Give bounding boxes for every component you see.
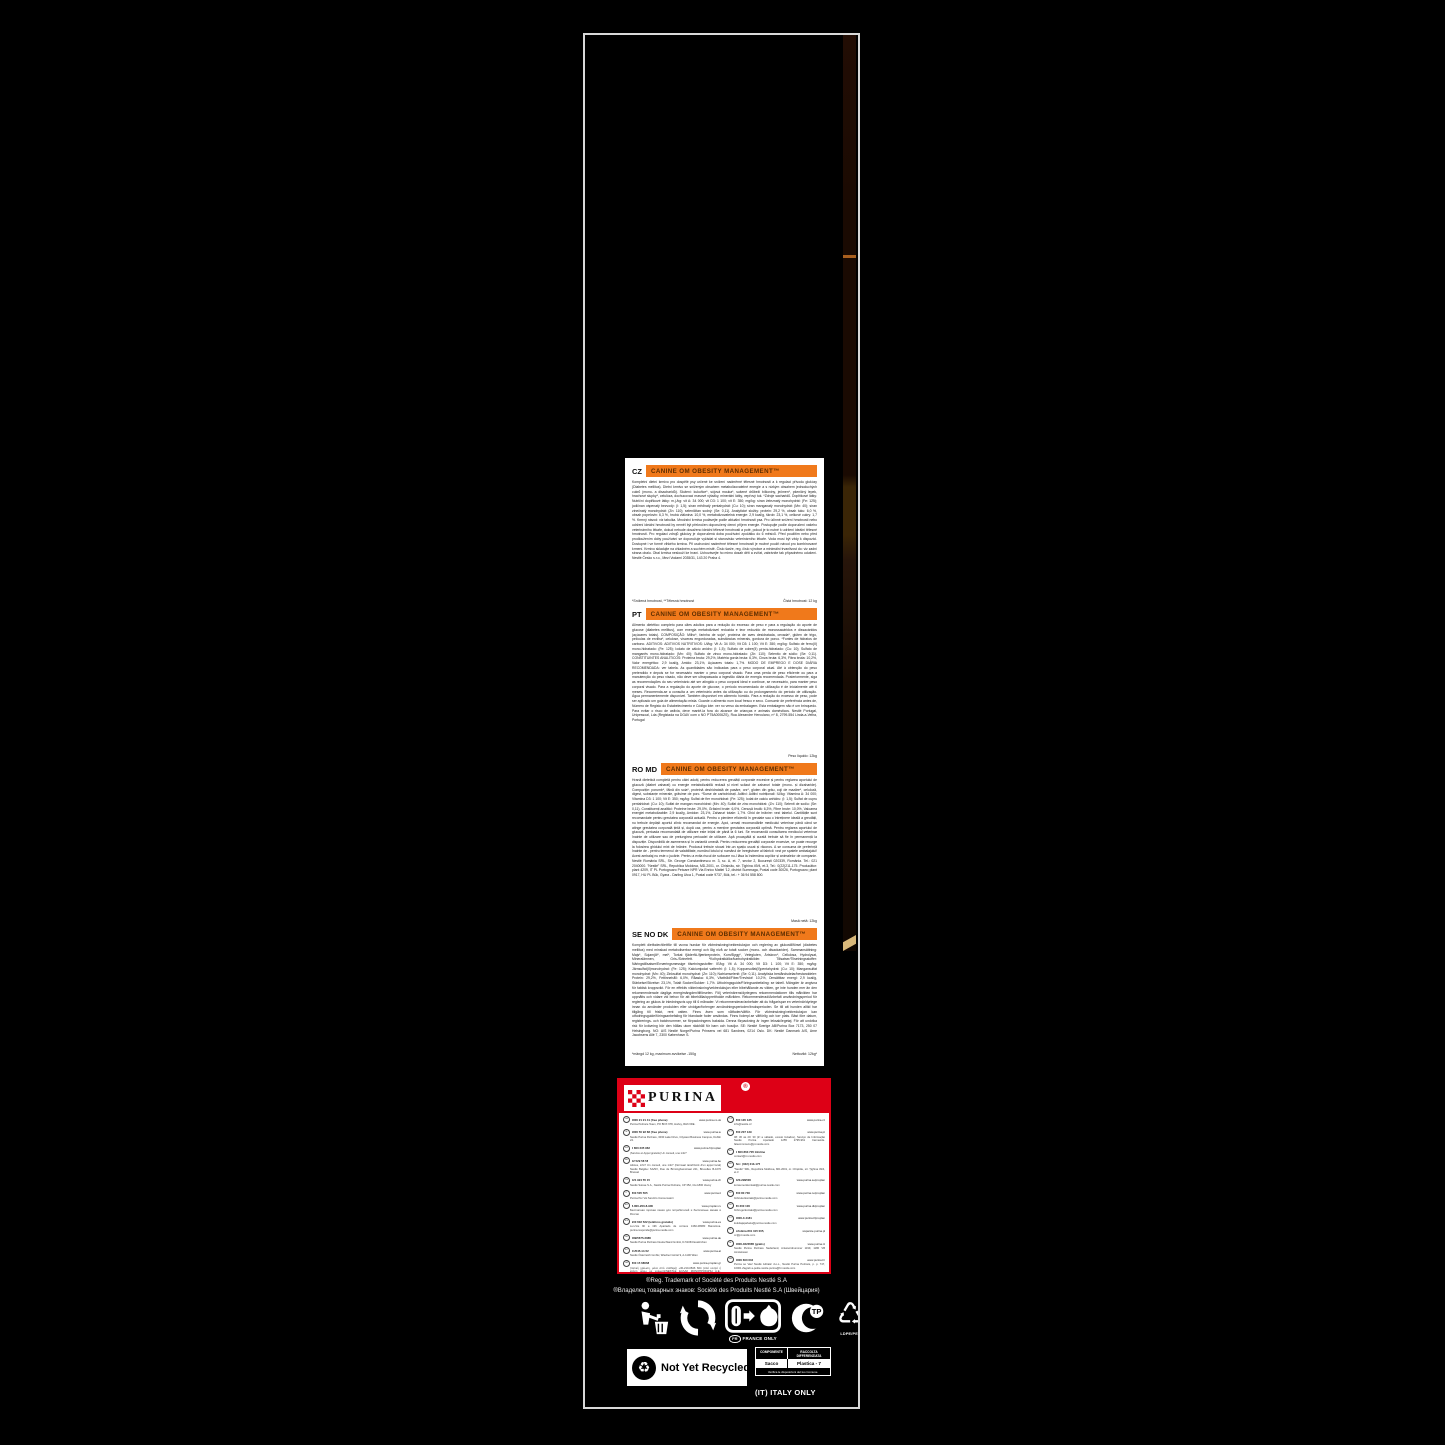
table-header-row: COMPONENTE RACCOLTA DIFFERENZIATA	[756, 1348, 830, 1359]
package-back-panel: CZ CANINE OM OBESITY MANAGEMENT™ Komplet…	[583, 33, 860, 1409]
contact-phone: 800 207 139	[736, 1130, 752, 1134]
cell-plastica: Plastica - 7	[788, 1359, 830, 1368]
contact-website: www.purina.hr	[807, 1258, 825, 1262]
contact-entry: FI 0800-0-4181 www.purina.fi/proplan kul…	[727, 1215, 825, 1225]
contact-entry: NL 0800-0223585 (gratis) www.purina.nl N…	[727, 1240, 825, 1254]
contact-address: Purina PetCare Team, PO BOX 678, Horley,…	[623, 1123, 721, 1126]
contact-address: (Service et Appel gratuits) Un conseil, …	[623, 1152, 721, 1155]
contact-column-right: CZ 800 135 135 www.purina.cz info@nestle…	[727, 1116, 825, 1274]
contact-website: www.purina.cz	[807, 1118, 825, 1122]
country-code-badge: GB	[623, 1116, 630, 1123]
header-raccolta: RACCOLTA DIFFERENZIATA	[788, 1348, 830, 1359]
contact-website: www.purina.fi/proplan	[798, 1216, 825, 1220]
header-componente: COMPONENTE	[756, 1348, 788, 1359]
contact-phone: Tel.: (022) 213-175	[736, 1162, 761, 1166]
country-code-badge: DK	[727, 1202, 734, 1209]
ldpe-recycle-icon: ♺ LDPE/PET	[837, 1299, 860, 1336]
contact-entry: IT 800 505 505 www.purina.it Purina Per …	[623, 1190, 721, 1200]
country-code-badge: CZ	[727, 1116, 734, 1123]
table-footer-note: Verifica le disposizioni del tuo Comune.	[756, 1368, 830, 1375]
contact-address: Purina Per Voi Servizio Consumatori	[623, 1197, 721, 1200]
net-weight: Nettovikt: 12kg*	[792, 1052, 817, 1056]
contact-address: contact@ro.nestle.com	[727, 1155, 825, 1158]
contact-website: www.purina.ie	[704, 1130, 721, 1134]
contact-phone: 900 602 522 (teléfono gratuito)	[632, 1220, 674, 1224]
contact-address: Purina se Vas! Nestlé Adriatic d.o.o., N…	[727, 1263, 825, 1270]
contact-website: www.purina.it	[704, 1191, 721, 1195]
table-data-row: Sacco Plastica - 7	[756, 1359, 830, 1368]
contact-website: wsparcie.purina.pl	[802, 1229, 825, 1233]
language-code: RO MD	[632, 763, 661, 775]
contact-address: forbrukerkontakt@purina.nestle.com	[727, 1197, 825, 1200]
contact-phone: 0800 21 21 41 (free phone)	[632, 1118, 668, 1122]
country-code-badge: SE	[727, 1177, 734, 1184]
contact-phone: Infolinia 801 315 005,	[736, 1229, 765, 1233]
contact-address: Lun-Vie 9h a 19h Apartado de correos 136…	[623, 1225, 721, 1232]
section-footnote: *mängd 12 kg, maximum avvikelse -150g	[632, 1052, 696, 1056]
contact-phone: 80 300 100	[736, 1204, 750, 1208]
net-weight: Čistá hmotnost: 12 kg	[783, 599, 817, 603]
section-footnote: *Snížená hmotnost, **Tělesná hmotnost	[632, 599, 694, 603]
language-code: CZ	[632, 465, 646, 477]
contact-address: Nestlé Österreich GmbH, Wiedner Gürtel 9…	[623, 1254, 721, 1257]
section-body-text: Kompletní dietní krmivo pro dospělé psy …	[632, 480, 817, 597]
purina-logo: PURINA	[624, 1085, 721, 1111]
trademark-line-ru: ®Владелец товарных знаков: Société des P…	[585, 1287, 848, 1297]
contact-address: "Nestlé" SRL, Republica Moldova, MD-2001…	[727, 1168, 825, 1175]
country-code-badge: BE	[623, 1157, 630, 1164]
contact-address: cc@pl.nestle.com	[727, 1234, 825, 1237]
italy-sorting-table: COMPONENTE RACCOLTA DIFFERENZIATA Sacco …	[755, 1347, 831, 1376]
contact-website: www.purina.se/proplan	[797, 1178, 825, 1182]
language-section: RO MD CANINE OM OBESITY MANAGEMENT™ Hran…	[632, 763, 817, 923]
contact-website: www.purina.fr/proplan	[694, 1146, 721, 1150]
contact-phone: 020-299500	[736, 1178, 751, 1182]
contact-entry: IE 1800 50 92 68 (free phone) www.purina…	[623, 1129, 721, 1143]
section-body-text: Hrană dietetică completă pentru câini ad…	[632, 778, 817, 917]
trademark-line-en: ®Reg. Trademark of Société des Produits …	[585, 1277, 848, 1287]
contact-entry: SE 020-299500 www.purina.se/proplan kons…	[727, 1177, 825, 1187]
contact-address: forbrugerkontakt@purina.nestle.com	[727, 1209, 825, 1212]
france-only-label: FRANCE ONLY	[743, 1336, 777, 1341]
country-code-badge: PL	[727, 1227, 734, 1234]
country-code-badge: CH	[623, 1177, 630, 1184]
contact-address: Nestlé Suisse S.A., Nestlé Purina PetCar…	[623, 1184, 721, 1187]
section-body-text: Komplett dietfoder/diettfôr till vuxna h…	[632, 943, 817, 1050]
contact-column-left: GB 0800 21 21 41 (free phone) www.purina…	[623, 1116, 721, 1274]
contact-phone: 01/545-14-52	[632, 1249, 649, 1253]
contact-address: Бесплатная горячая линия для потребителе…	[623, 1209, 721, 1216]
contact-phone: 021 924 55 15	[632, 1178, 651, 1182]
not-yet-recycled-badge: ♻ Not Yet Recycled	[627, 1349, 747, 1386]
product-title-bar: CANINE OM OBESITY MANAGEMENT™	[646, 608, 817, 620]
france-sorting-icon: FR FRANCE ONLY	[725, 1299, 781, 1343]
ldpe-label: LDPE/PET	[840, 1332, 860, 1336]
contact-entry: DK 80 300 100 www.purina.dk/proplan forb…	[727, 1202, 825, 1212]
contact-entry: AT 01/545-14-52 www.purina.at Nestlé Öst…	[623, 1247, 721, 1257]
green-dot-icon	[679, 1299, 717, 1337]
contact-columns: GB 0800 21 21 41 (free phone) www.purina…	[619, 1113, 829, 1274]
contact-phone: 089/5675.3088	[632, 1236, 651, 1240]
country-code-badge: RO	[727, 1148, 734, 1155]
edge-strip-seam	[843, 255, 856, 258]
contact-entry: HR 0800 600 604 www.purina.hr Purina se …	[727, 1256, 825, 1270]
contact-phone: 800 135 135	[736, 1118, 752, 1122]
language-code: PT	[632, 608, 646, 620]
contact-entry: RU 8-800-200-8-900 www.proplan.ru Беспла…	[623, 1202, 721, 1216]
fr-oval-badge: FR	[729, 1335, 740, 1343]
contact-website: www.purina.co.uk	[699, 1118, 721, 1122]
country-code-badge: NO	[727, 1190, 734, 1197]
italy-only-label: (IT) ITALY ONLY	[755, 1388, 816, 1397]
contact-website: www.purina.es	[703, 1220, 721, 1224]
contact-entry: PT 800 207 139 www.purina.pt 08: 30 às 2…	[727, 1129, 825, 1146]
product-title-bar: CANINE OM OBESITY MANAGEMENT™	[661, 763, 817, 775]
section-footer: Peso líquido: 12kg	[632, 754, 817, 758]
contact-address: Nestlé Purina PetCare Deutschland GmbH, …	[623, 1241, 721, 1244]
section-body-text: Alimento dietético completo para cães ad…	[632, 623, 817, 752]
language-code: SE NO DK	[632, 928, 672, 940]
registered-mark-icon: ®	[741, 1082, 750, 1091]
contact-entry: CH 021 924 55 15 www.purina.ch Nestlé Su…	[623, 1177, 721, 1187]
language-section: CZ CANINE OM OBESITY MANAGEMENT™ Komplet…	[632, 465, 817, 603]
section-header: PT CANINE OM OBESITY MANAGEMENT™	[632, 608, 817, 620]
country-code-badge: ES	[623, 1218, 630, 1225]
contact-address: kuluttajapalvelu@purina.nestle.com	[727, 1222, 825, 1225]
contact-entry: DE 089/5675.3088 www.purina.de Nestlé Pu…	[623, 1234, 721, 1244]
package-edge-strip	[843, 35, 856, 951]
svg-text:TP: TP	[812, 1307, 822, 1316]
section-footer: *mängd 12 kg, maximum avvikelse -150g Ne…	[632, 1052, 817, 1056]
country-code-badge: FR	[623, 1145, 630, 1152]
contact-entry: MD Tel.: (022) 213-175 "Nestlé" SRL, Rep…	[727, 1161, 825, 1175]
contact-entry: GR 800 15 68068 www.purina-proplan.gr (τ…	[623, 1260, 721, 1274]
product-title-bar: CANINE OM OBESITY MANAGEMENT™	[672, 928, 817, 940]
contact-entry: BE 02 529 58 58 www.purina.be Advies, in…	[623, 1157, 721, 1174]
country-code-badge: RU	[623, 1202, 630, 1209]
recycling-icons-row: FR FRANCE ONLY TP ♺ LDPE/PET	[633, 1299, 838, 1343]
contact-website: www.purina.dk/proplan	[797, 1204, 825, 1208]
contact-entry: CZ 800 135 135 www.purina.cz info@nestle…	[727, 1116, 825, 1126]
contact-entry: RO 0 800 863 705 Infoline contact@ro.nes…	[727, 1148, 825, 1158]
country-code-badge: NL	[727, 1240, 734, 1247]
contact-entry: FR 0 800 235 962 www.purina.fr/proplan (…	[623, 1145, 721, 1155]
purina-checkerboard-icon	[628, 1090, 645, 1107]
section-header: SE NO DK CANINE OM OBESITY MANAGEMENT™	[632, 928, 817, 940]
contact-website: www.purina.ch	[703, 1178, 721, 1182]
language-section: PT CANINE OM OBESITY MANAGEMENT™ Aliment…	[632, 608, 817, 758]
contact-website: www.purina.pt	[807, 1130, 825, 1134]
purina-wordmark: PURINA	[648, 1090, 717, 1106]
country-code-badge: MD	[727, 1161, 734, 1168]
section-footer: *Snížená hmotnost, **Tělesná hmotnost Či…	[632, 599, 817, 603]
contact-phone: 800 80 730	[736, 1191, 750, 1195]
contact-website: www.purina.be	[703, 1159, 721, 1163]
country-code-badge: HR	[727, 1256, 734, 1263]
country-code-badge: SK	[727, 1272, 734, 1274]
contact-entry: NO 800 80 730 www.purina.no/proplan forb…	[727, 1190, 825, 1200]
country-code-badge: GR	[623, 1260, 630, 1267]
contact-panel: PURINA ® GB 0800 21 21 41 (free phone) w…	[617, 1078, 831, 1274]
contact-address: Advies, info? Un conseil, une info? (Nor…	[623, 1164, 721, 1174]
product-photo-canvas: CZ CANINE OM OBESITY MANAGEMENT™ Komplet…	[0, 0, 1445, 1445]
net-weight: Peso líquido: 12kg	[788, 754, 817, 758]
not-yet-recycled-label: Not Yet Recycled	[661, 1362, 750, 1374]
contact-phone: 0 800 863 705 Infoline	[736, 1150, 766, 1154]
contact-website: www.purina.at	[703, 1249, 721, 1253]
edge-strip-gradient	[843, 35, 856, 951]
contact-address: 08: 30 às 20: 30 (2ª a sábado, exceto fe…	[727, 1136, 825, 1146]
contact-phone: 0800 600 604	[736, 1258, 754, 1262]
cell-sacco: Sacco	[756, 1359, 788, 1368]
contact-phone: 02 529 58 58	[632, 1159, 649, 1163]
contact-address: Nestlé Purina PetCare, 3030 Lake Drive, …	[623, 1136, 721, 1143]
section-header: CZ CANINE OM OBESITY MANAGEMENT™	[632, 465, 817, 477]
brand-band: PURINA ®	[619, 1080, 829, 1113]
contact-phone: 800 15 68068	[632, 1261, 650, 1265]
contact-website: www.purina.nl	[808, 1242, 825, 1246]
contact-address: (τοπική χρέωση, μόνο από σταθερό) +30-21…	[623, 1267, 721, 1274]
contact-entry: PL Infolinia 801 315 005, wsparcie.purin…	[727, 1227, 825, 1237]
contact-website: www.proplan.ru	[702, 1204, 721, 1208]
contact-phone: 1800 50 92 68 (free phone)	[632, 1130, 668, 1134]
product-title-bar: CANINE OM OBESITY MANAGEMENT™	[646, 465, 817, 477]
language-section: SE NO DK CANINE OM OBESITY MANAGEMENT™ K…	[632, 928, 817, 1056]
tidy-man-icon	[633, 1299, 671, 1337]
contact-website: www.purina.de	[703, 1236, 721, 1240]
not-yet-recycled-icon: ♻	[632, 1356, 656, 1380]
contact-phone: 0 800 235 962	[632, 1146, 651, 1150]
contact-phone: 0800-0223585 (gratis)	[736, 1242, 765, 1246]
country-code-badge: IE	[623, 1129, 630, 1136]
country-code-badge: PT	[727, 1129, 734, 1136]
country-code-badge: DE	[623, 1234, 630, 1241]
contact-phone: 0800-0-4181	[736, 1216, 752, 1220]
section-footer: Masă netă: 12kg	[632, 919, 817, 923]
net-weight: Masă netă: 12kg	[791, 919, 817, 923]
france-only-caption: FR FRANCE ONLY	[729, 1335, 777, 1343]
contact-phone: 8-800-200-8-900	[632, 1204, 654, 1208]
contact-entry: ES 900 602 522 (teléfono gratuito) www.p…	[623, 1218, 721, 1232]
contact-address: info@nestle.cz	[727, 1123, 825, 1126]
contact-address: konsumentkontakt@purina.nestle.com	[727, 1184, 825, 1187]
section-header: RO MD CANINE OM OBESITY MANAGEMENT™	[632, 763, 817, 775]
country-code-badge: AT	[623, 1247, 630, 1254]
country-code-badge: IT	[623, 1190, 630, 1197]
country-code-badge: FI	[727, 1215, 734, 1222]
contact-website: www.purina-proplan.gr	[693, 1261, 721, 1265]
contact-address: Nestlé Purina PetCare Nederland, Antwoor…	[727, 1247, 825, 1254]
contact-website: www.purina.no/proplan	[797, 1191, 825, 1195]
trademark-lines: ®Reg. Trademark of Société des Produits …	[585, 1277, 848, 1296]
contact-entry: GB 0800 21 21 41 (free phone) www.purina…	[623, 1116, 721, 1126]
c-tp-certification-icon: TP	[789, 1299, 829, 1337]
language-label-panel: CZ CANINE OM OBESITY MANAGEMENT™ Komplet…	[625, 458, 824, 1066]
contact-entry: SK 0800 202 42 info@sk.nestle.com	[727, 1272, 825, 1274]
contact-phone: 800 505 505	[632, 1191, 648, 1195]
